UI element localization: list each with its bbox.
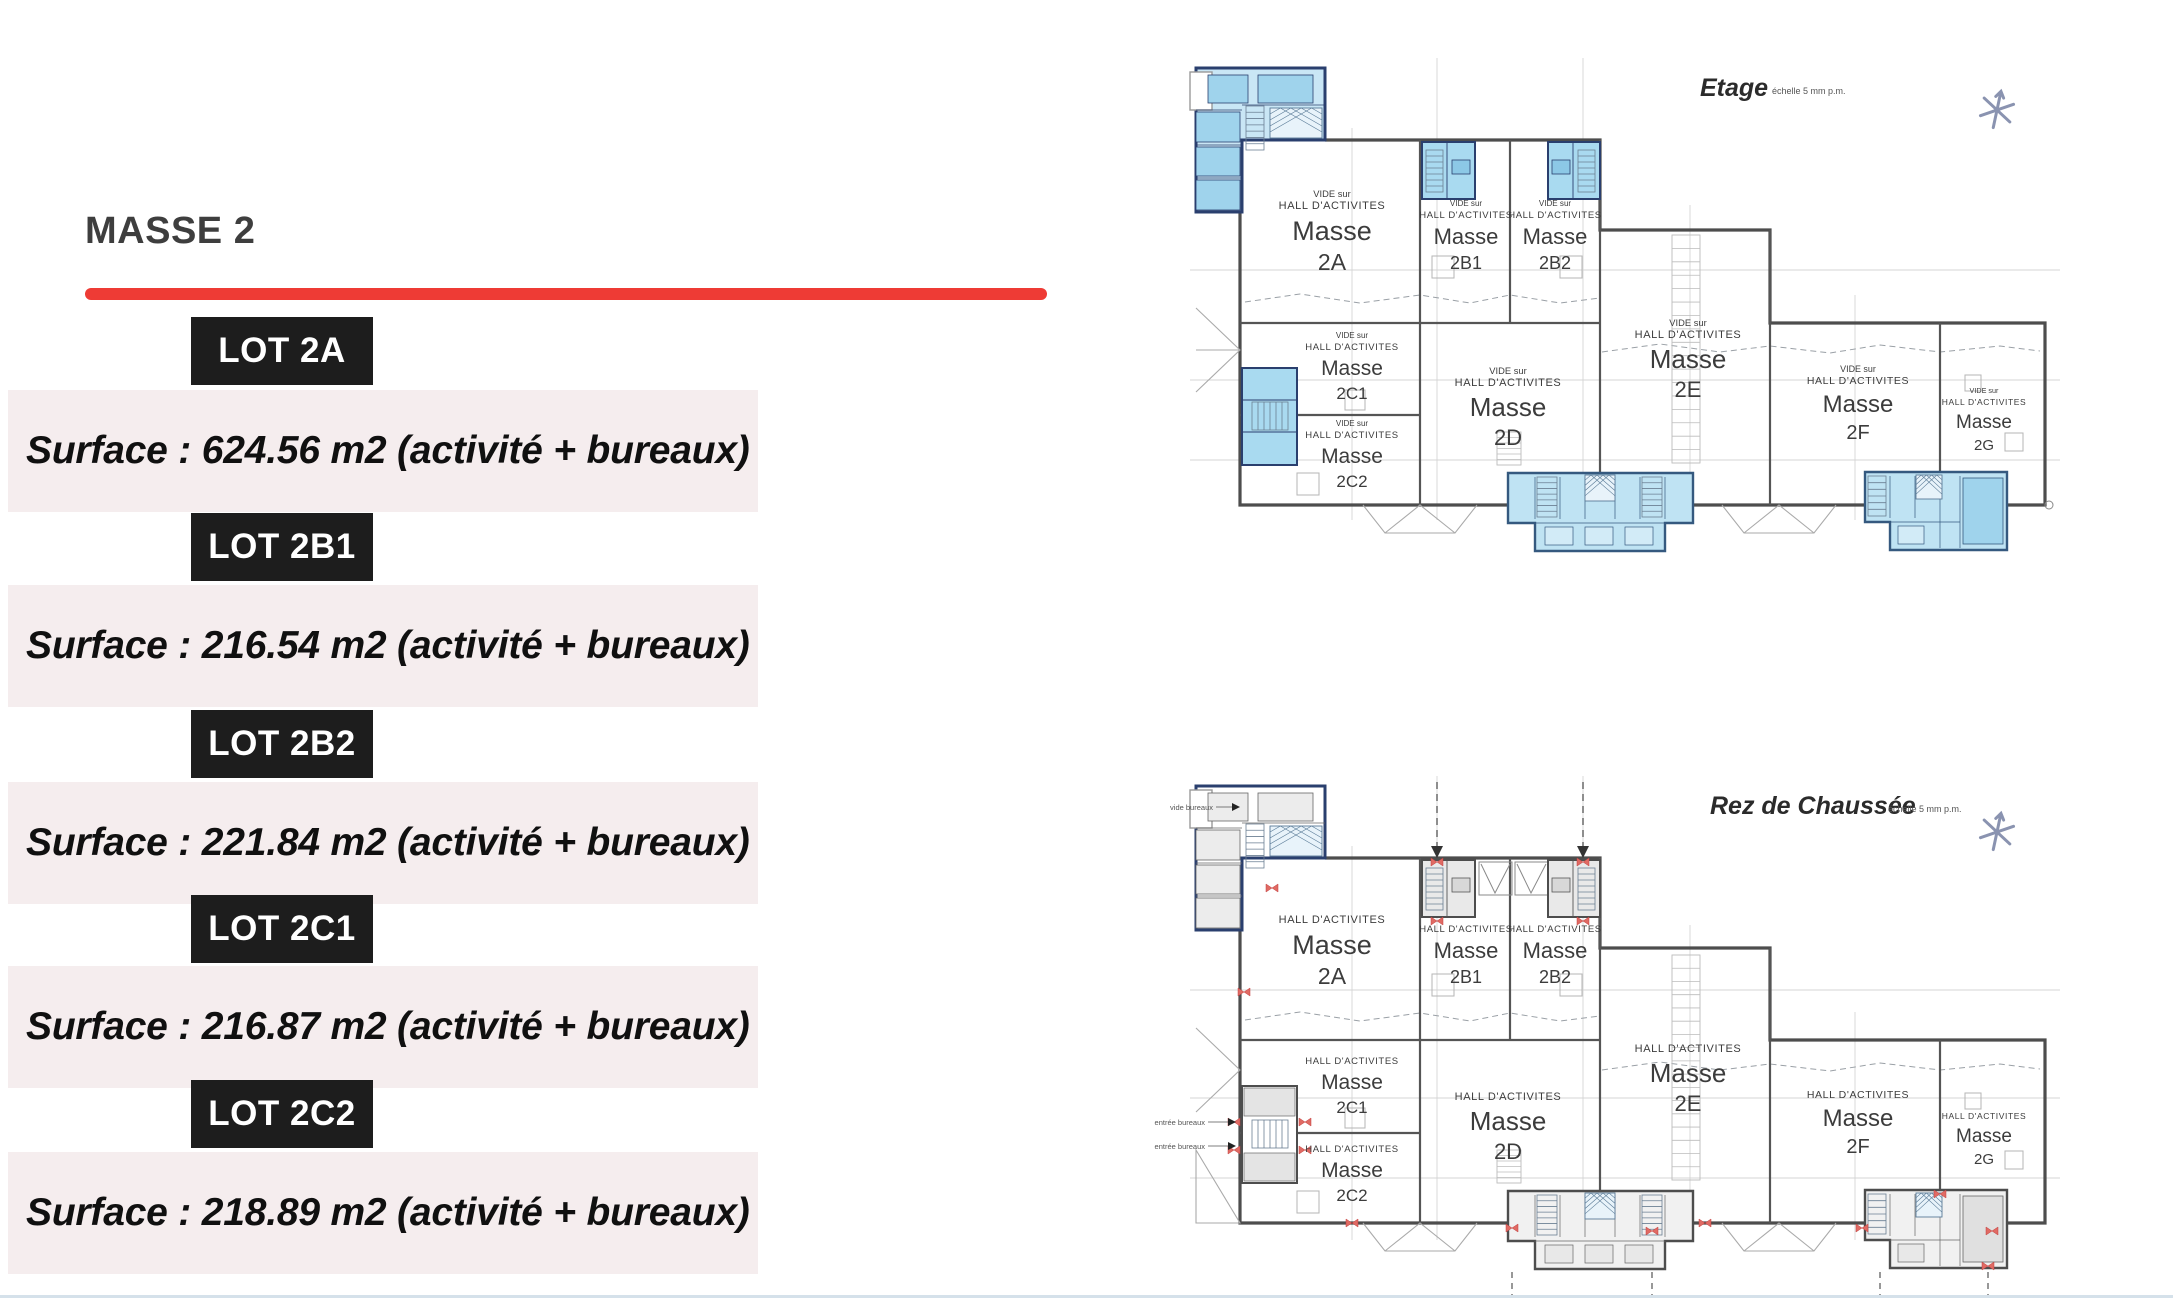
- etage-stair-2b1: [1422, 142, 1475, 199]
- room-label: 2G: [1974, 437, 1994, 454]
- rdc-stair-2b1: [1422, 860, 1475, 917]
- room-label: 2F: [1846, 422, 1869, 444]
- room-label: 2C1: [1336, 384, 1367, 403]
- room-label: Masse: [1523, 224, 1588, 249]
- etage-sanitary-right: [1865, 472, 2007, 550]
- room-label: Masse: [1292, 216, 1372, 246]
- rdc-stair-core: [1242, 1086, 1297, 1183]
- north-star-icon: [1979, 88, 2016, 130]
- door-marker-icon: [1266, 884, 1278, 892]
- room-label: HALL D'ACTIVITES: [1508, 210, 1601, 221]
- room-label: 2A: [1318, 249, 1347, 275]
- svg-text:entrée bureaux: entrée bureaux: [1155, 1142, 1206, 1151]
- room-label: Masse: [1956, 1126, 2012, 1147]
- room-label: HALL D'ACTIVITES: [1279, 914, 1386, 926]
- etage-plan: Etage échelle 5 mm p.m. VIDE surHALL D'A…: [1190, 58, 2060, 551]
- room-label: 2E: [1675, 1091, 1702, 1116]
- etage-room-labels: VIDE surHALL D'ACTIVITESMasse2AVIDE surH…: [1279, 189, 2027, 491]
- room-label: Masse: [1650, 344, 1727, 374]
- etage-stair-core: [1242, 368, 1297, 465]
- room-label: 2C1: [1336, 1098, 1367, 1117]
- svg-text:vide bureaux: vide bureaux: [1170, 803, 1213, 812]
- door-marker-icon: [1856, 1224, 1868, 1232]
- north-star-icon-rdc: [1979, 810, 2016, 852]
- rdc-plan: vide bureaux entrée bureaux entrée burea…: [1155, 776, 2060, 1297]
- etage-column-squares: [1297, 256, 2023, 495]
- room-label: HALL D'ACTIVITES: [1807, 1089, 1909, 1101]
- rdc-sanitary-center: [1508, 1191, 1693, 1269]
- room-label: Masse: [1470, 392, 1547, 422]
- room-label: Masse: [1321, 1159, 1383, 1182]
- room-label: 2F: [1846, 1136, 1869, 1158]
- room-label: Masse: [1321, 357, 1383, 380]
- room-label: HALL D'ACTIVITES: [1635, 1043, 1742, 1055]
- room-label: 2B2: [1539, 253, 1571, 273]
- rdc-stair-2b2: [1548, 860, 1600, 917]
- room-label: 2C2: [1336, 472, 1367, 491]
- etage-annex: [1190, 68, 1325, 212]
- rdc-axis-drops: [1512, 1272, 1988, 1297]
- rdc-column-squares: [1297, 974, 2023, 1213]
- room-label: VIDE sur: [1669, 318, 1706, 328]
- etage-sanitary-center: [1508, 473, 1693, 551]
- room-label: VIDE sur: [1840, 364, 1876, 374]
- rdc-sanitary-right: [1865, 1190, 2007, 1268]
- room-label: HALL D'ACTIVITES: [1635, 329, 1742, 341]
- room-label: Masse: [1321, 1071, 1383, 1094]
- room-label: Masse: [1470, 1106, 1547, 1136]
- room-label: HALL D'ACTIVITES: [1942, 1111, 2027, 1121]
- page-bottom-rule: [0, 1295, 2173, 1298]
- room-label: Masse: [1823, 391, 1894, 418]
- room-label: 2B2: [1539, 967, 1571, 987]
- room-label: VIDE sur: [1336, 331, 1369, 340]
- room-label: 2D: [1494, 425, 1522, 450]
- room-label: Masse: [1523, 938, 1588, 963]
- room-label: 2C2: [1336, 1186, 1367, 1205]
- rdc-scale-note: échelle 5 mm p.m.: [1888, 804, 1962, 814]
- room-label: VIDE sur: [1336, 419, 1369, 428]
- room-label: Masse: [1956, 412, 2012, 433]
- room-label: 2E: [1675, 377, 1702, 402]
- room-label: Masse: [1650, 1058, 1727, 1088]
- etage-title: Etage: [1700, 74, 1768, 102]
- door-marker-icon: [1699, 1219, 1711, 1227]
- page: MASSE 2 LOT 2A Surface : 624.56 m2 (acti…: [0, 0, 2173, 1300]
- svg-text:entrée bureaux: entrée bureaux: [1155, 1118, 1206, 1127]
- floor-plans: Etage échelle 5 mm p.m. VIDE surHALL D'A…: [0, 0, 2173, 1300]
- room-label: HALL D'ACTIVITES: [1455, 377, 1562, 389]
- rdc-title: Rez de Chaussée: [1710, 792, 1916, 820]
- room-label: HALL D'ACTIVITES: [1305, 1144, 1398, 1155]
- room-label: 2G: [1974, 1151, 1994, 1168]
- room-label: HALL D'ACTIVITES: [1419, 210, 1512, 221]
- room-label: Masse: [1292, 930, 1372, 960]
- room-label: HALL D'ACTIVITES: [1419, 924, 1512, 935]
- room-label: HALL D'ACTIVITES: [1305, 430, 1398, 441]
- room-label: Masse: [1321, 445, 1383, 468]
- room-label: HALL D'ACTIVITES: [1942, 397, 2027, 407]
- room-label: 2D: [1494, 1139, 1522, 1164]
- room-label: VIDE sur: [1970, 386, 1999, 395]
- room-label: Masse: [1823, 1105, 1894, 1132]
- room-label: HALL D'ACTIVITES: [1305, 1056, 1398, 1067]
- room-label: 2A: [1318, 963, 1347, 989]
- room-label: Masse: [1434, 224, 1499, 249]
- door-marker-icon: [1238, 988, 1250, 996]
- room-label: HALL D'ACTIVITES: [1455, 1091, 1562, 1103]
- room-label: VIDE sur: [1450, 199, 1483, 208]
- room-label: VIDE sur: [1313, 189, 1350, 199]
- room-label: VIDE sur: [1489, 366, 1526, 376]
- room-label: HALL D'ACTIVITES: [1508, 924, 1601, 935]
- room-label: HALL D'ACTIVITES: [1807, 375, 1909, 387]
- door-marker-icon: [1299, 1118, 1311, 1126]
- room-label: HALL D'ACTIVITES: [1279, 200, 1386, 212]
- room-label: HALL D'ACTIVITES: [1305, 342, 1398, 353]
- room-label: 2B1: [1450, 967, 1482, 987]
- rdc-room-labels: HALL D'ACTIVITESMasse2AHALL D'ACTIVITESM…: [1279, 914, 2027, 1205]
- room-label: VIDE sur: [1539, 199, 1572, 208]
- room-label: Masse: [1434, 938, 1499, 963]
- etage-scale-note: échelle 5 mm p.m.: [1772, 86, 1846, 96]
- etage-stair-2b2: [1548, 142, 1600, 199]
- room-label: 2B1: [1450, 253, 1482, 273]
